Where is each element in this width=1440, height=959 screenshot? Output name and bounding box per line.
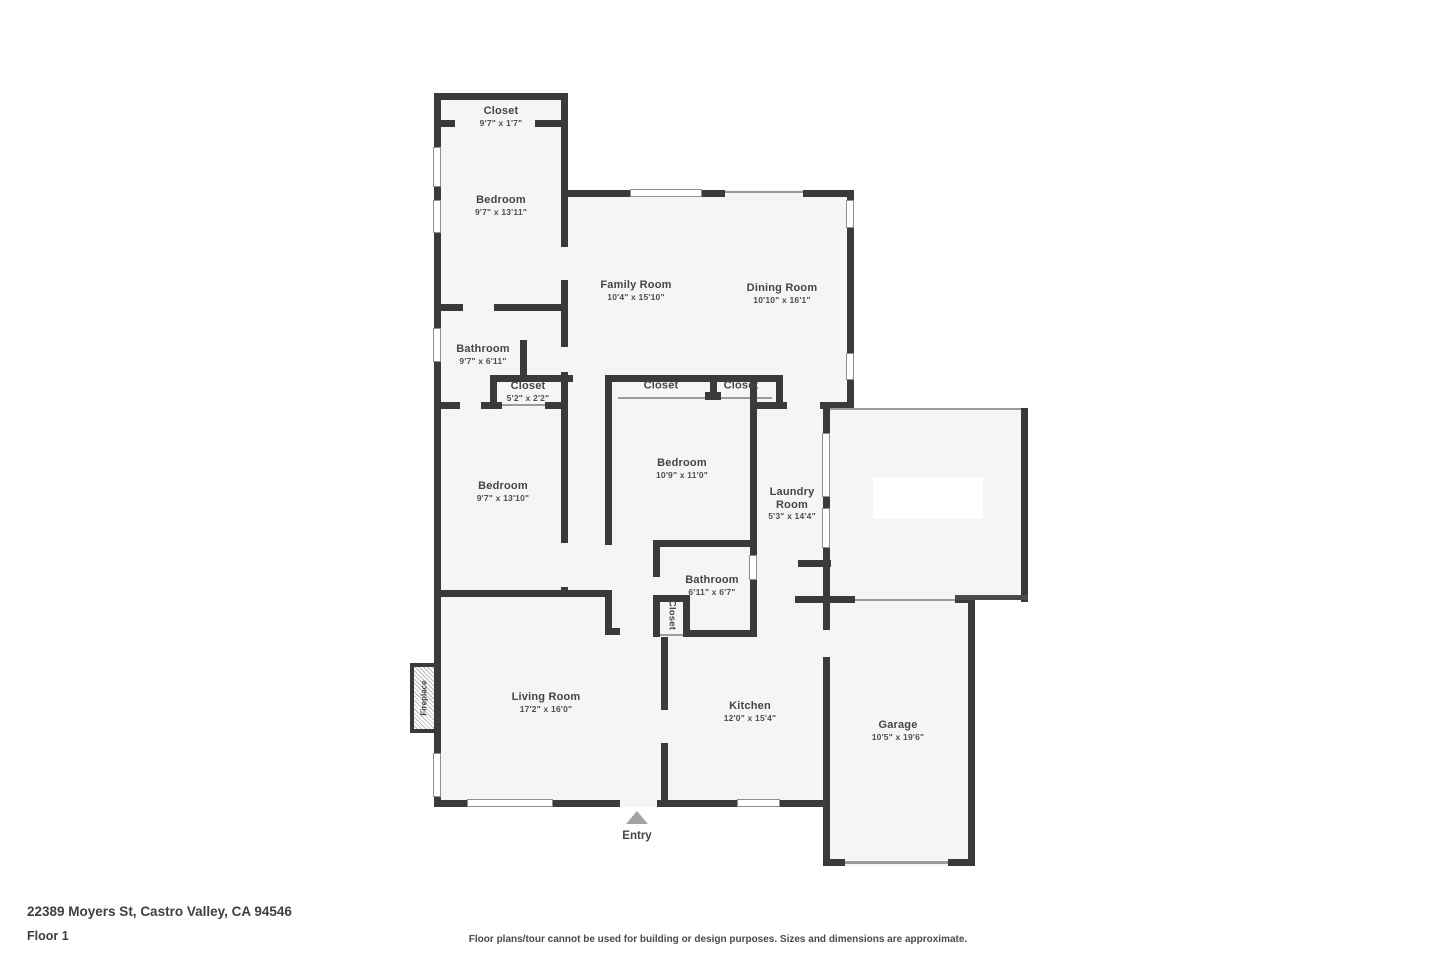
window [467, 799, 553, 807]
window [433, 753, 441, 797]
room-name: Laundry Room [763, 486, 821, 511]
floor-number-label: Floor 1 [27, 929, 69, 943]
room-label-living-room: Living Room 17'2" x 16'0" [512, 691, 581, 715]
room-name: Closet [644, 380, 679, 393]
room-label-closet-hall: Closet 5'2" x 2'2" [507, 380, 550, 404]
wall-segment [561, 280, 568, 347]
room-dims: 10'4" x 15'10" [600, 292, 671, 303]
wall-segment [702, 190, 725, 197]
room-name: Closet [507, 380, 550, 393]
room-label-family-room: Family Room 10'4" x 15'10" [600, 279, 671, 303]
room-dims: 6'11" x 6'7" [685, 587, 739, 598]
wall-segment [535, 120, 568, 127]
wall-segment [561, 372, 568, 543]
wall-segment [750, 547, 757, 555]
opening-line [845, 861, 948, 864]
room-label-closet-top: Closet 9'7" x 1'7" [480, 105, 523, 129]
opening-line [855, 599, 955, 601]
wall-segment [823, 408, 830, 433]
wall-segment [830, 596, 855, 603]
room-dims: 9'7" x 6'11" [456, 356, 510, 367]
wall-segment [605, 628, 620, 635]
room-name: Bedroom [656, 457, 708, 470]
wall-segment [434, 590, 612, 597]
room-name: Bathroom [685, 574, 739, 587]
wall-segment [434, 93, 568, 100]
room-name: Bedroom [475, 194, 527, 207]
room-name: Family Room [600, 279, 671, 292]
wall-segment [780, 800, 830, 807]
window [822, 433, 830, 497]
room-dims: 5'3" x 14'4" [763, 511, 821, 522]
room-dims: 9'7" x 13'10" [477, 493, 530, 504]
room-name: Bedroom [477, 480, 530, 493]
wall-segment [948, 859, 975, 866]
wall-segment [494, 304, 568, 311]
opening-line [618, 397, 706, 399]
wall-segment [561, 93, 568, 247]
window [846, 200, 854, 228]
wall-segment [434, 402, 460, 409]
wall-segment [955, 595, 1028, 600]
wall-segment [968, 596, 975, 866]
room-dims: 12'0" x 15'4" [724, 713, 777, 724]
room-label-bathroom-mid: Bathroom 6'11" x 6'7" [685, 574, 739, 598]
wall-segment [798, 560, 831, 567]
wall-segment [830, 859, 845, 866]
property-address: 22389 Moyers St, Castro Valley, CA 94546 [27, 904, 292, 919]
room-label-bedroom-mid: Bedroom 10'9" x 11'0" [656, 457, 708, 481]
disclaimer-text: Floor plans/tour cannot be used for buil… [469, 934, 967, 945]
wall-segment [568, 190, 630, 197]
window [846, 353, 854, 380]
wall-segment [823, 497, 830, 508]
room-name: Dining Room [747, 282, 818, 295]
wall-segment [750, 382, 757, 547]
room-dims: 10'9" x 11'0" [656, 470, 708, 481]
entry-label: Entry [622, 830, 651, 842]
wall-segment [690, 630, 757, 637]
room-label-bedroom-left: Bedroom 9'7" x 13'10" [477, 480, 530, 504]
wall-segment [776, 375, 783, 409]
room-label-closet-small: Closet [666, 600, 677, 630]
room-name: Kitchen [724, 700, 777, 713]
floorplan-canvas: Fireplace Entry Closet 9'7" x 1'7" Bedro… [0, 0, 1440, 959]
room-name: Closet [724, 380, 759, 393]
wall-segment [653, 595, 660, 637]
room-label-dining-room: Dining Room 10'10" x 16'1" [747, 282, 818, 306]
opening-line [725, 191, 803, 193]
wall-segment [434, 120, 455, 127]
wall-segment [653, 547, 660, 577]
room-label-closet-mid-left: Closet [644, 380, 679, 393]
room-label-garage: Garage 10'5" x 19'6" [872, 719, 925, 743]
room-label-kitchen: Kitchen 12'0" x 15'4" [724, 700, 777, 724]
wall-segment [683, 595, 690, 637]
wall-segment [605, 382, 612, 545]
room-label-bedroom-top: Bedroom 9'7" x 13'11" [475, 194, 527, 218]
wall-segment [1021, 408, 1028, 602]
window [433, 147, 441, 187]
room-label-closet-mid-right: Closet [724, 380, 759, 393]
wall-segment [705, 392, 721, 400]
wall-segment [657, 800, 737, 807]
room-label-bathroom-top: Bathroom 9'7" x 6'11" [456, 343, 510, 367]
room-label-laundry-room: Laundry Room 5'3" x 14'4" [763, 486, 821, 522]
opening-line [830, 408, 1028, 410]
opening-line [721, 397, 772, 399]
wall-segment [434, 800, 467, 807]
room-name: Garage [872, 719, 925, 732]
opening-line [660, 634, 683, 636]
blank-label-area [873, 477, 983, 519]
wall-segment [661, 743, 668, 807]
room-name: Living Room [512, 691, 581, 704]
window [433, 200, 441, 233]
window [433, 328, 441, 362]
room-dims: 17'2" x 16'0" [512, 704, 581, 715]
window [737, 799, 780, 807]
wall-segment [653, 540, 757, 547]
room-dims: 5'2" x 2'2" [507, 393, 550, 404]
wall-segment [520, 340, 527, 382]
wall-segment [661, 637, 668, 710]
window [749, 555, 757, 580]
wall-segment [750, 580, 757, 637]
wall-segment [481, 402, 502, 409]
opening-line [502, 404, 545, 406]
room-dims: 10'5" x 19'6" [872, 732, 925, 743]
room-dims: 9'7" x 1'7" [480, 118, 523, 129]
room-dims: 9'7" x 13'11" [475, 207, 527, 218]
room-name: Closet [480, 105, 523, 118]
window [822, 508, 830, 548]
room-name: Closet [666, 600, 677, 630]
wall-segment [803, 190, 853, 197]
room-dims: 10'10" x 16'1" [747, 295, 818, 306]
room-name: Bathroom [456, 343, 510, 356]
window [630, 189, 702, 197]
entry-arrow-icon [626, 811, 648, 824]
wall-segment [823, 657, 830, 866]
wall-segment [434, 304, 463, 311]
wall-segment [553, 800, 620, 807]
fireplace-label: Fireplace [420, 680, 429, 715]
